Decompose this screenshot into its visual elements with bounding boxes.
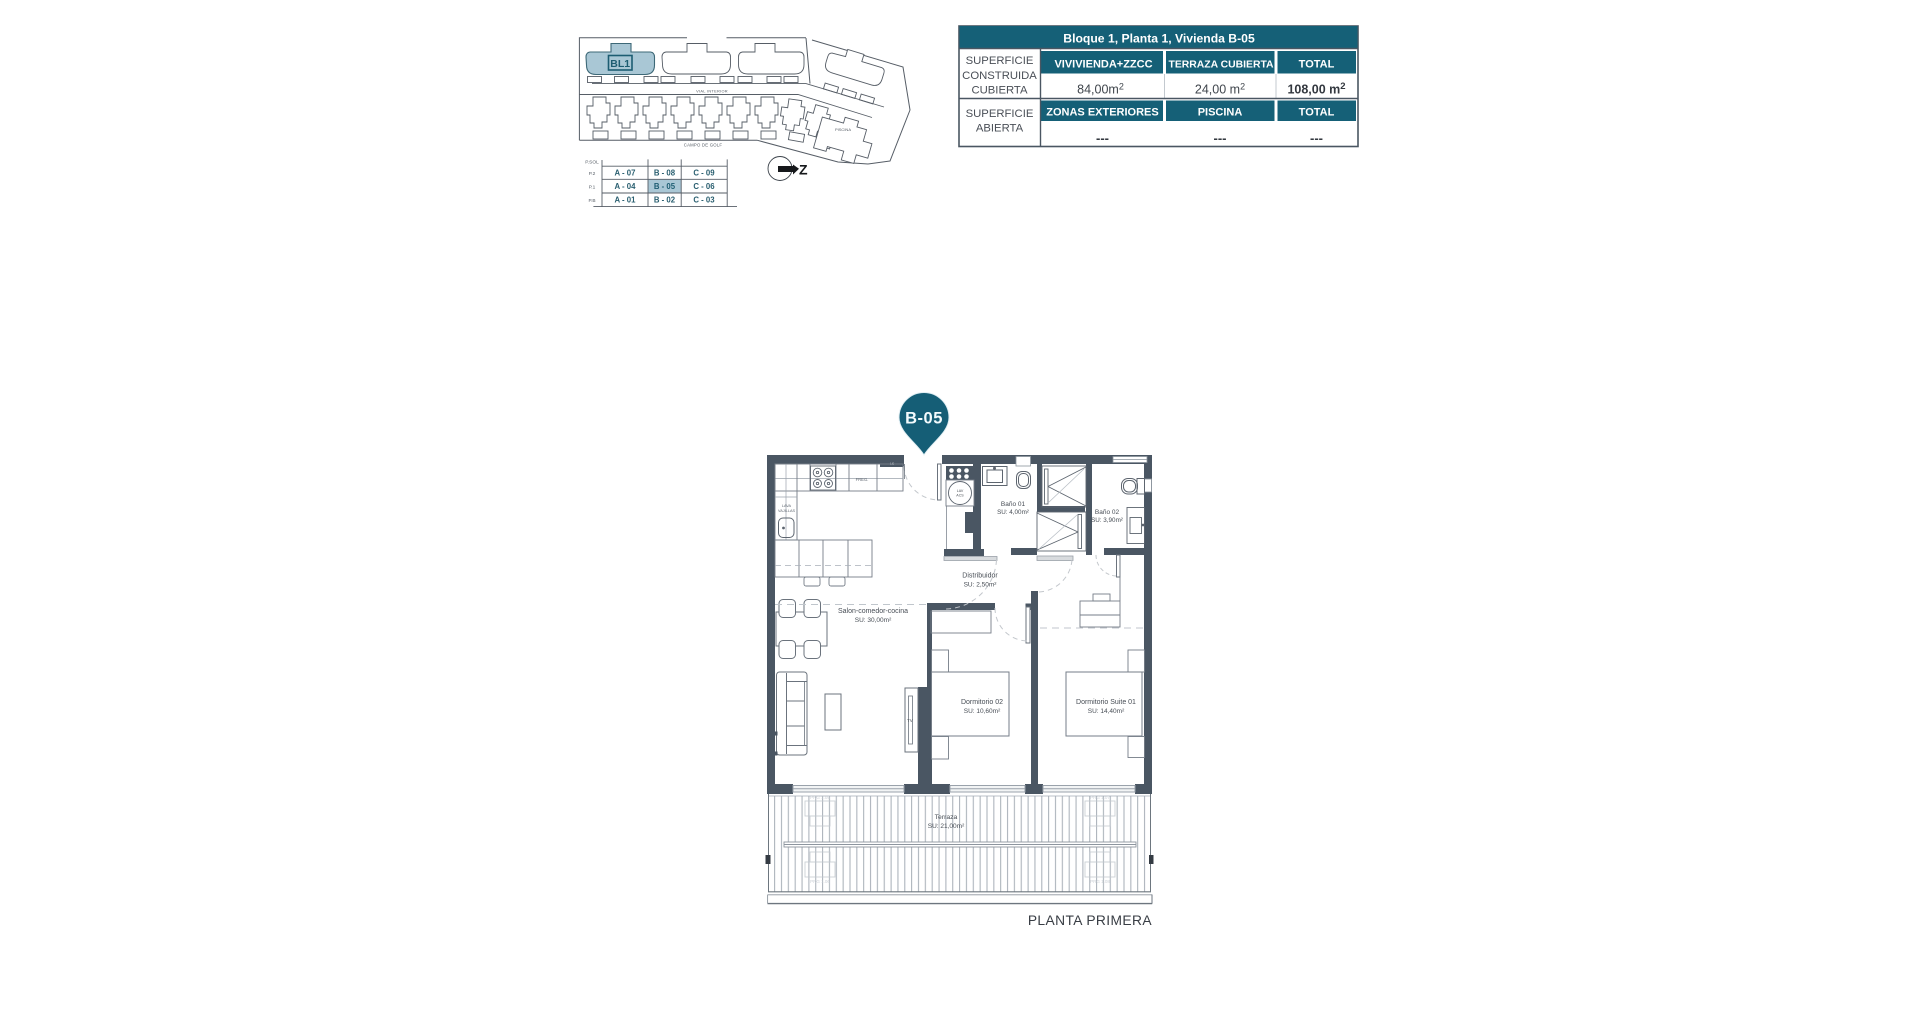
svg-text:Distribuidor: Distribuidor bbox=[962, 573, 998, 580]
svg-text:TERRAZA CUBIERTA: TERRAZA CUBIERTA bbox=[1168, 60, 1274, 71]
svg-text:PRG 1.08: PRG 1.08 bbox=[1090, 879, 1110, 884]
svg-text:TOTAL: TOTAL bbox=[1299, 59, 1335, 71]
svg-text:SUPERFICIE: SUPERFICIE bbox=[966, 55, 1034, 67]
svg-text:A - 07: A - 07 bbox=[615, 169, 636, 178]
svg-text:PRG 1.05: PRG 1.05 bbox=[810, 795, 830, 800]
svg-text:SUPERFICIE: SUPERFICIE bbox=[966, 108, 1034, 120]
svg-text:Z: Z bbox=[799, 162, 808, 178]
svg-text:BL1: BL1 bbox=[610, 58, 630, 70]
svg-text:P.1: P.1 bbox=[589, 185, 596, 191]
svg-text:108,00 m2: 108,00 m2 bbox=[1287, 81, 1345, 97]
svg-text:TV: TV bbox=[907, 718, 913, 723]
svg-text:P.2: P.2 bbox=[589, 171, 596, 177]
svg-text:---: --- bbox=[1214, 131, 1227, 146]
svg-text:ZONAS EXTERIORES: ZONAS EXTERIORES bbox=[1046, 107, 1158, 119]
svg-text:24,00 m2: 24,00 m2 bbox=[1195, 82, 1245, 97]
svg-text:PLANTA PRIMERA: PLANTA PRIMERA bbox=[1028, 913, 1153, 928]
svg-text:TOTAL: TOTAL bbox=[1299, 107, 1335, 119]
svg-text:SU: 10,60m²: SU: 10,60m² bbox=[964, 708, 1001, 715]
svg-text:ABIERTA: ABIERTA bbox=[976, 123, 1024, 135]
svg-text:SU: 2,50m²: SU: 2,50m² bbox=[964, 582, 998, 589]
svg-text:FREG.: FREG. bbox=[856, 477, 869, 482]
svg-text:B-05: B-05 bbox=[905, 410, 943, 428]
svg-text:VAJILLAS: VAJILLAS bbox=[778, 509, 795, 513]
svg-text:SU: 21,00m²: SU: 21,00m² bbox=[928, 823, 965, 830]
svg-text:ACS: ACS bbox=[956, 494, 964, 498]
svg-text:Baño 01: Baño 01 bbox=[1001, 501, 1026, 508]
svg-text:LAVA: LAVA bbox=[782, 504, 792, 508]
svg-text:84,00m2: 84,00m2 bbox=[1077, 82, 1124, 97]
svg-text:B - 02: B - 02 bbox=[654, 196, 676, 205]
svg-text:B - 08: B - 08 bbox=[654, 169, 676, 178]
svg-text:CUBIERTA: CUBIERTA bbox=[971, 85, 1028, 97]
svg-text:PRG 1.06: PRG 1.06 bbox=[810, 879, 830, 884]
svg-text:SU: 14,40m²: SU: 14,40m² bbox=[1088, 708, 1125, 715]
svg-text:A - 01: A - 01 bbox=[615, 196, 637, 205]
svg-text:P.SOL: P.SOL bbox=[585, 160, 599, 166]
svg-text:---: --- bbox=[1310, 131, 1323, 146]
svg-text:A - 04: A - 04 bbox=[615, 182, 637, 191]
svg-text:Dormitorio 02: Dormitorio 02 bbox=[961, 699, 1003, 706]
svg-text:SU: 30,00m²: SU: 30,00m² bbox=[855, 617, 892, 624]
svg-text:C - 09: C - 09 bbox=[693, 169, 715, 178]
svg-text:---: --- bbox=[1096, 131, 1109, 146]
svg-text:B - 05: B - 05 bbox=[654, 182, 676, 191]
svg-text:SU: 3,90m²: SU: 3,90m² bbox=[1091, 517, 1123, 524]
svg-text:SU: 4,00m²: SU: 4,00m² bbox=[997, 509, 1029, 516]
svg-text:C - 06: C - 06 bbox=[693, 182, 715, 191]
svg-text:Baño 02: Baño 02 bbox=[1095, 509, 1120, 516]
svg-text:Bloque 1, Planta 1, Vivienda B: Bloque 1, Planta 1, Vivienda B-05 bbox=[1063, 32, 1255, 46]
svg-text:C - 03: C - 03 bbox=[693, 196, 715, 205]
svg-text:PISCINA: PISCINA bbox=[835, 127, 851, 132]
svg-text:Dormitorio Suite 01: Dormitorio Suite 01 bbox=[1076, 699, 1136, 706]
svg-text:Salon-comedor-cocina: Salon-comedor-cocina bbox=[838, 608, 908, 615]
svg-text:Terraza: Terraza bbox=[935, 814, 958, 821]
svg-text:LAV: LAV bbox=[957, 489, 964, 493]
svg-text:PRG 1.07: PRG 1.07 bbox=[1090, 795, 1110, 800]
svg-text:CONSTRUIDA: CONSTRUIDA bbox=[962, 70, 1037, 82]
svg-text:P.B: P.B bbox=[588, 198, 595, 204]
svg-text:VIAL INTERIOR: VIAL INTERIOR bbox=[696, 88, 728, 93]
svg-text:PISCINA: PISCINA bbox=[1198, 107, 1243, 119]
svg-text:CAMPO DE GOLF: CAMPO DE GOLF bbox=[684, 143, 723, 148]
svg-text:VIVIVIENDA+ZZCC: VIVIVIENDA+ZZCC bbox=[1054, 59, 1152, 71]
